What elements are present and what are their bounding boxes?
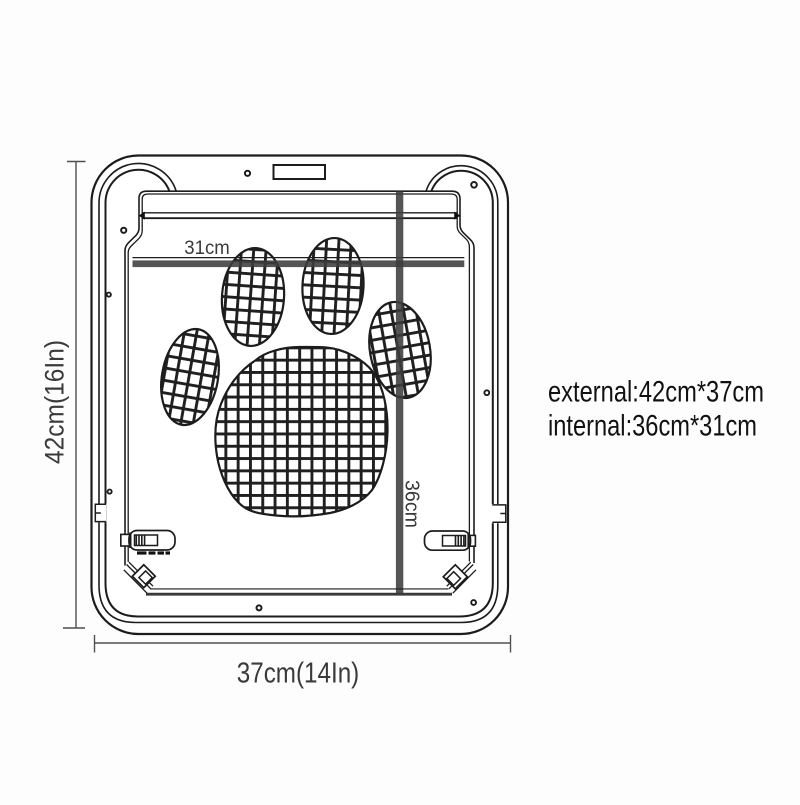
svg-text:36cm: 36cm bbox=[401, 480, 424, 528]
svg-text:internal:36cm*31cm: internal:36cm*31cm bbox=[548, 410, 757, 443]
svg-text:42cm(16In): 42cm(16In) bbox=[40, 340, 70, 464]
svg-text:37cm(14In): 37cm(14In) bbox=[237, 658, 360, 690]
svg-text:31cm: 31cm bbox=[184, 237, 230, 259]
svg-text:external:42cm*37cm: external:42cm*37cm bbox=[548, 376, 764, 409]
